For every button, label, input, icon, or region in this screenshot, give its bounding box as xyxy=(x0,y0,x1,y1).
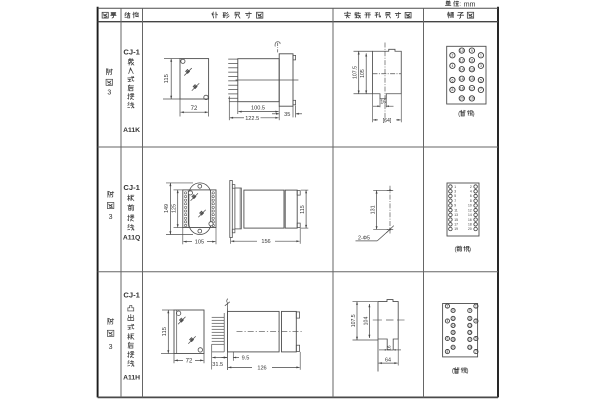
svg-text:A11H: A11H xyxy=(123,375,140,382)
svg-text:5: 5 xyxy=(480,78,482,82)
svg-text:15: 15 xyxy=(454,218,458,222)
svg-text:18: 18 xyxy=(451,338,455,342)
svg-text:19: 19 xyxy=(470,97,474,101)
svg-text:2: 2 xyxy=(446,304,448,308)
svg-text:14: 14 xyxy=(451,324,455,328)
svg-text:11: 11 xyxy=(470,58,474,62)
svg-text:15: 15 xyxy=(468,331,472,335)
svg-text:9.5: 9.5 xyxy=(242,356,250,362)
svg-text:9: 9 xyxy=(454,204,456,208)
svg-text:122.5: 122.5 xyxy=(245,116,259,122)
svg-text:131: 131 xyxy=(371,205,377,214)
svg-text:3: 3 xyxy=(109,214,113,221)
svg-text:16: 16 xyxy=(386,345,391,351)
svg-text:8: 8 xyxy=(451,88,453,92)
svg-text:3: 3 xyxy=(480,64,482,68)
svg-text:104: 104 xyxy=(363,317,369,326)
svg-text:17: 17 xyxy=(454,222,458,226)
svg-text:72: 72 xyxy=(191,106,198,112)
svg-text:4: 4 xyxy=(470,190,472,194)
svg-text:20: 20 xyxy=(460,97,464,101)
svg-text:18: 18 xyxy=(468,222,472,226)
svg-text:156: 156 xyxy=(261,239,270,245)
svg-text:9: 9 xyxy=(471,49,473,53)
svg-text:11: 11 xyxy=(454,208,458,212)
svg-text:149: 149 xyxy=(164,204,170,213)
svg-text:13: 13 xyxy=(470,67,474,71)
svg-text:4: 4 xyxy=(451,64,453,68)
svg-text:): ) xyxy=(469,246,471,253)
svg-text:13: 13 xyxy=(468,324,472,328)
svg-text:3: 3 xyxy=(475,319,477,323)
svg-text:105: 105 xyxy=(195,240,204,246)
svg-text:16: 16 xyxy=(380,100,386,106)
svg-text:CJ-1: CJ-1 xyxy=(123,290,140,299)
svg-text:17: 17 xyxy=(468,338,472,342)
svg-text:3: 3 xyxy=(107,90,111,97)
svg-text:11: 11 xyxy=(468,317,472,321)
svg-text:): ) xyxy=(473,110,475,117)
svg-text:3: 3 xyxy=(109,344,113,351)
svg-text:5: 5 xyxy=(475,337,477,341)
svg-text:mm: mm xyxy=(464,1,476,8)
svg-text:10: 10 xyxy=(451,309,455,313)
svg-text:12: 12 xyxy=(460,58,464,62)
svg-text:8: 8 xyxy=(470,199,472,203)
svg-text:10: 10 xyxy=(468,204,472,208)
svg-text:6: 6 xyxy=(446,337,448,341)
svg-text:100.5: 100.5 xyxy=(251,106,265,112)
svg-text:115: 115 xyxy=(162,327,168,336)
svg-text:16: 16 xyxy=(460,77,464,81)
svg-text:2-Φ5: 2-Φ5 xyxy=(358,235,370,241)
svg-text:4: 4 xyxy=(446,319,448,323)
svg-text:A11K: A11K xyxy=(123,127,140,134)
svg-text:18: 18 xyxy=(460,86,464,90)
svg-text:10: 10 xyxy=(460,49,464,53)
svg-text:1: 1 xyxy=(475,304,477,308)
svg-text:16: 16 xyxy=(468,218,472,222)
svg-text:14: 14 xyxy=(460,67,464,71)
svg-text:9: 9 xyxy=(469,309,471,313)
svg-text:2: 2 xyxy=(451,54,453,58)
svg-text:3: 3 xyxy=(454,190,456,194)
svg-text:17: 17 xyxy=(470,86,474,90)
svg-text:107.5: 107.5 xyxy=(353,66,359,79)
svg-text:12: 12 xyxy=(451,317,455,321)
svg-text:1: 1 xyxy=(454,185,456,189)
svg-text:7: 7 xyxy=(475,350,477,354)
svg-text:115: 115 xyxy=(164,74,170,83)
svg-text:CJ-1: CJ-1 xyxy=(123,47,140,56)
svg-text:14: 14 xyxy=(468,213,472,217)
svg-text:19: 19 xyxy=(454,227,458,231)
svg-text:125: 125 xyxy=(172,204,178,213)
svg-text:35: 35 xyxy=(284,112,290,118)
svg-text:6: 6 xyxy=(470,194,472,198)
svg-text:126: 126 xyxy=(257,365,266,371)
svg-text:115: 115 xyxy=(300,205,306,214)
svg-text:12: 12 xyxy=(468,208,472,212)
svg-text:6: 6 xyxy=(451,78,453,82)
svg-text:64: 64 xyxy=(385,357,391,363)
svg-text:107.5: 107.5 xyxy=(351,314,357,327)
svg-text:): ) xyxy=(466,368,468,375)
svg-text:13: 13 xyxy=(454,213,458,217)
svg-text::: : xyxy=(459,1,461,8)
svg-text:19: 19 xyxy=(468,346,472,350)
svg-text:20: 20 xyxy=(451,346,455,350)
svg-text:16: 16 xyxy=(451,331,455,335)
svg-text:7: 7 xyxy=(454,199,456,203)
svg-text:5: 5 xyxy=(454,194,456,198)
svg-text:1: 1 xyxy=(480,54,482,58)
svg-text:7: 7 xyxy=(480,88,482,92)
svg-text:105: 105 xyxy=(360,69,366,78)
svg-text:72: 72 xyxy=(186,359,193,365)
svg-text:A11Q: A11Q xyxy=(123,235,140,242)
svg-text:CJ-1: CJ-1 xyxy=(123,183,140,192)
svg-text:[64]: [64] xyxy=(383,118,392,124)
svg-text:8: 8 xyxy=(446,350,448,354)
svg-text:20: 20 xyxy=(468,227,472,231)
svg-text:2: 2 xyxy=(470,185,472,189)
svg-text:31.5: 31.5 xyxy=(212,362,223,368)
svg-text:15: 15 xyxy=(470,77,474,81)
